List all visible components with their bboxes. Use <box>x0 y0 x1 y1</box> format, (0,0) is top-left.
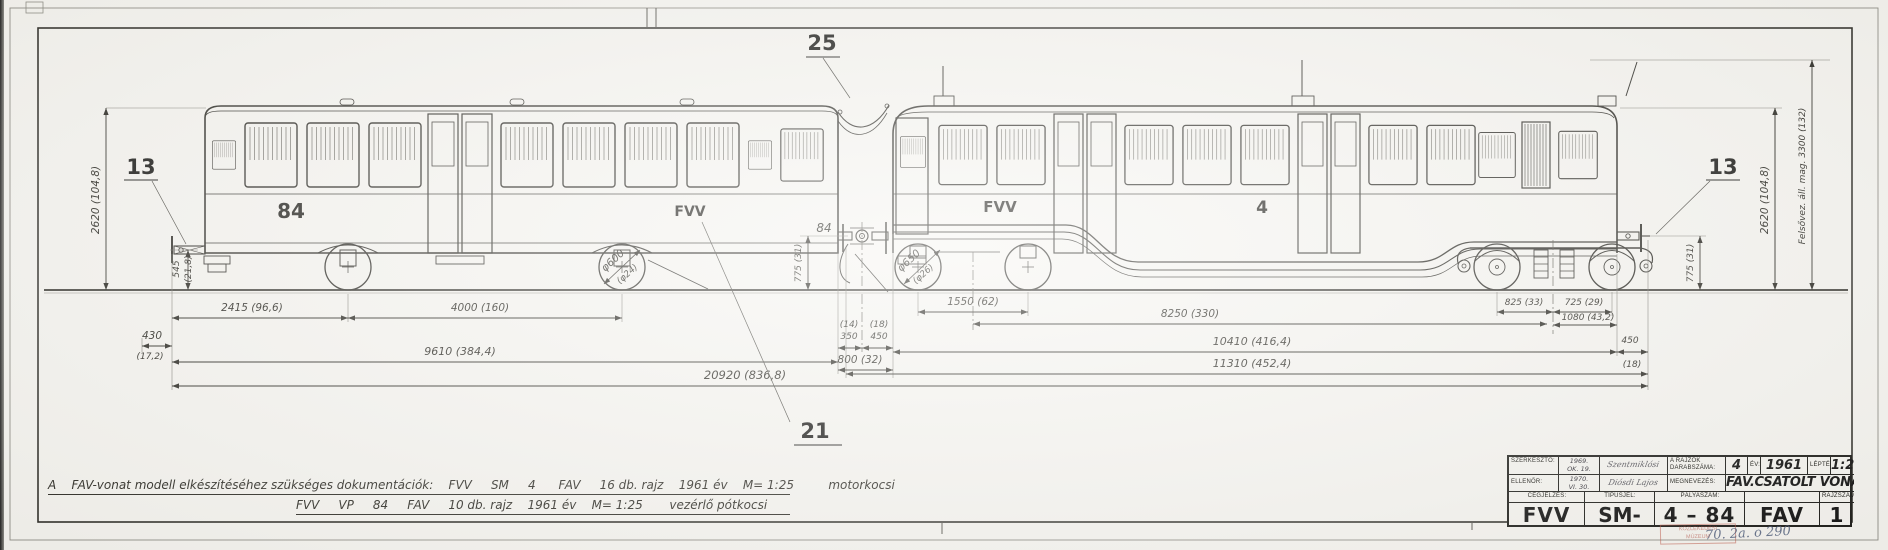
trolley-pole <box>1626 62 1637 96</box>
pieces-label: A RAJZOK DARABSZÁMA: <box>1667 457 1725 475</box>
dim-label: 11310 (452,4) <box>1213 357 1292 370</box>
name-label: MEGNEVEZÉS: <box>1667 475 1725 492</box>
fleet-number-value: 4 – 84 <box>1654 503 1744 525</box>
dim-label: 725 (29) <box>1565 298 1604 308</box>
window <box>369 123 421 187</box>
right-car-undergear <box>895 224 1653 290</box>
jumper-cable <box>838 113 887 134</box>
window <box>748 141 771 169</box>
car-logo-right: FVV <box>983 198 1017 216</box>
window <box>1125 125 1173 184</box>
callout-13-left: 13 <box>126 155 155 179</box>
bottom-center-mark <box>942 522 1472 534</box>
window <box>1559 131 1598 178</box>
window <box>1427 125 1475 184</box>
top-center-mark <box>647 8 656 28</box>
rear-bogie <box>1458 244 1653 290</box>
window <box>997 125 1045 184</box>
window <box>900 137 925 168</box>
year-value: 1961 <box>1760 457 1807 475</box>
window <box>687 123 739 187</box>
documentation-note-line1: A FAV-vonat modell elkészítéséhez szüksé… <box>48 477 790 495</box>
center-lines <box>862 222 1553 352</box>
drawing-number-label: RAJZSZÁM: <box>1819 492 1854 503</box>
series-value: FAV <box>1744 503 1819 525</box>
window <box>625 123 677 187</box>
dim-label: 2620 (104,8) <box>1759 166 1771 234</box>
dim-label: 430 <box>142 330 162 342</box>
dim-label: 9610 (384,4) <box>424 345 496 358</box>
callout-25: 25 <box>807 31 836 55</box>
car-logo-left: FVV <box>674 204 705 220</box>
checker-signature: Diósdi Lajos <box>1599 475 1667 492</box>
louver-panel <box>1522 122 1550 188</box>
dim-label: 8250 (330) <box>1161 308 1219 320</box>
empty-cell <box>1744 492 1819 503</box>
dim-label: (17,2) <box>136 352 163 362</box>
dim-label: 10410 (416,4) <box>1213 335 1292 348</box>
dim-label: (14) <box>840 320 858 330</box>
type-label: TÍPUSJEL: <box>1584 492 1654 503</box>
window <box>212 141 235 169</box>
brake-rod <box>648 260 708 289</box>
coupling-gangway <box>838 104 889 292</box>
front-step <box>204 256 230 264</box>
dim-label: 1550 (62) <box>947 296 999 308</box>
car-number-right: 4 <box>1256 198 1268 218</box>
window <box>563 123 615 187</box>
jumper-cable <box>838 105 889 127</box>
window <box>501 123 553 187</box>
editor-label: SZERKESZTŐ: <box>1509 457 1558 475</box>
left-car <box>205 99 838 253</box>
company-label: CÉGJELZÉS: <box>1509 492 1584 503</box>
dim-label: (18) <box>1623 360 1641 370</box>
roof-equipment <box>934 60 1830 106</box>
callout-21: 21 <box>800 419 829 443</box>
window <box>1479 132 1516 177</box>
window <box>307 123 359 187</box>
window <box>1183 125 1231 184</box>
fleet-number-label: PÁLYASZÁM: <box>1654 492 1744 503</box>
left-car-windows <box>212 123 823 187</box>
checker-date: 1970.VI. 30. <box>1558 475 1599 492</box>
corner-mark <box>26 2 43 13</box>
window <box>939 125 987 184</box>
dim-label: 545 <box>172 260 182 277</box>
left-car-roof-vents <box>340 99 694 105</box>
dim-label: 450 <box>870 332 887 342</box>
wheel-diameter-label: (φ26) <box>911 263 936 287</box>
title-block: SZERKESZTŐ: 1969.OK. 19. Szentmiklósi A … <box>1507 455 1852 527</box>
window <box>1241 125 1289 184</box>
dim-label: 825 (33) <box>1505 298 1544 308</box>
dim-label: 350 <box>840 332 857 342</box>
window <box>245 123 297 187</box>
documentation-note-line2: FVV VP 84 FAV 10 db. rajz 1961 év M= 1:2… <box>296 497 790 515</box>
dim-label: 4000 (160) <box>451 302 509 314</box>
dimension-lines <box>142 312 1648 386</box>
drawing-number-value: 1 <box>1819 503 1854 525</box>
left-car-door <box>428 114 492 253</box>
type-value: SM-VP <box>1584 503 1654 525</box>
drawing-sheet: φ600 (φ24) <box>0 0 1888 550</box>
dim-label: 20920 (836,8) <box>704 368 786 382</box>
dim-label: 800 (32) <box>838 354 883 366</box>
window <box>1369 125 1417 184</box>
dim-label: 775 (31) <box>794 244 804 283</box>
dim-label: (21,8) <box>184 255 194 282</box>
car-end-number: 84 <box>816 221 831 235</box>
right-car-windows <box>900 125 1597 184</box>
drawing-name: FAV.CSATOLT VONAT <box>1725 475 1854 492</box>
dim-label: 2620 (104,8) <box>90 166 102 234</box>
vertical-dimension-lines <box>106 60 1812 290</box>
car-number-left: 84 <box>277 199 305 223</box>
editor-date: 1969.OK. 19. <box>1558 457 1599 475</box>
dim-label: Felsővez. áll. mag. 3300 (132) <box>1798 108 1808 245</box>
checker-label: ELLENŐR: <box>1509 475 1558 492</box>
rail-line <box>44 290 1848 293</box>
callout-13-right: 13 <box>1708 155 1737 179</box>
scale-value: 1:25 <box>1830 457 1854 475</box>
company-value: FVV <box>1509 503 1584 525</box>
dim-label: 1080 (43,2) <box>1562 313 1615 323</box>
dim-label: 2415 (96,6) <box>221 302 283 314</box>
dim-label: 775 (31) <box>1686 244 1696 283</box>
door-step <box>436 256 484 264</box>
dim-label: (18) <box>870 320 888 330</box>
front-door <box>896 118 928 234</box>
scale-label: LÉPTÉK: <box>1807 457 1830 475</box>
pieces-value: 4 <box>1725 457 1747 475</box>
editor-signature: Szentmiklósi <box>1599 457 1667 475</box>
year-label: ÉV: <box>1747 457 1760 475</box>
callouts: 25 13 13 21 <box>124 31 1740 445</box>
window <box>781 129 823 181</box>
dim-label: 450 <box>1621 336 1638 346</box>
wheel-diameter-label: φ600 <box>599 247 627 274</box>
brake-hose <box>840 244 850 283</box>
